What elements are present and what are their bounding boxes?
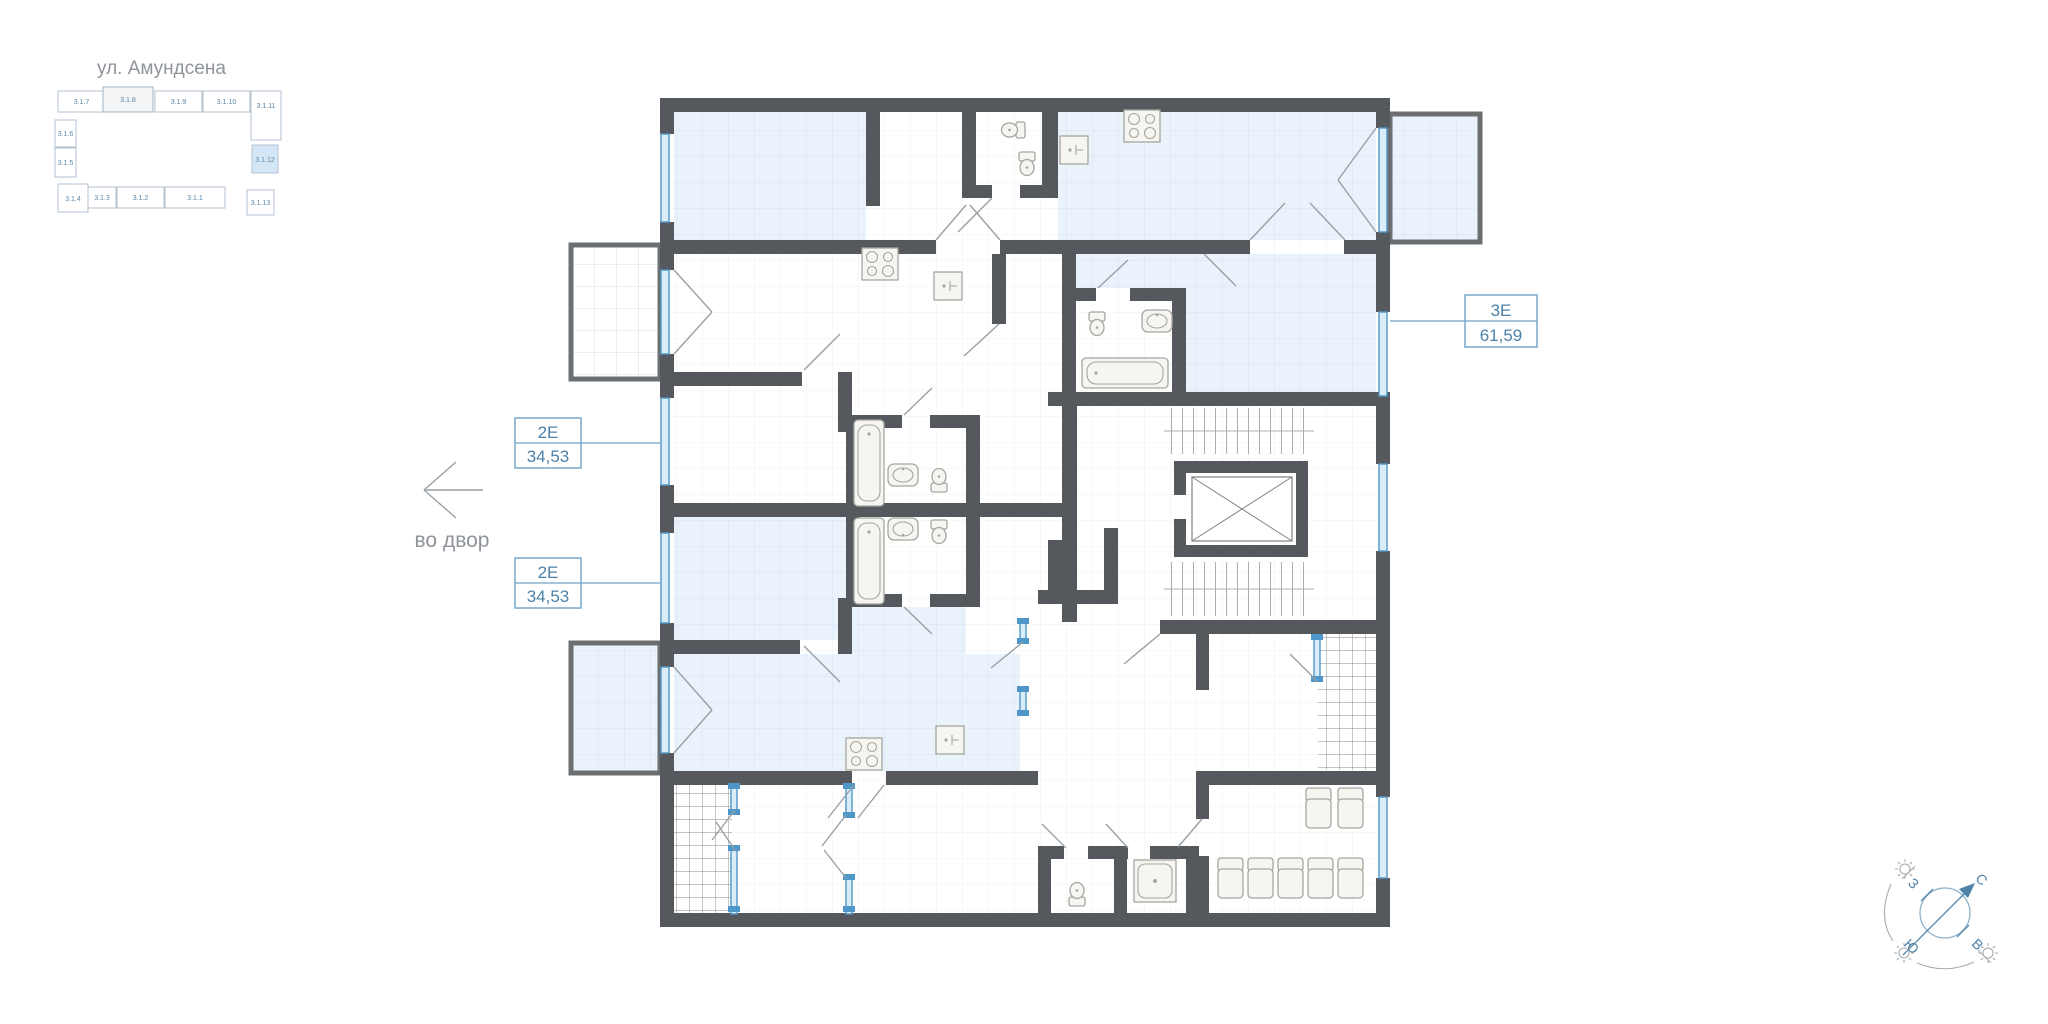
toilet-icon — [1002, 122, 1026, 138]
svg-text:3.1.13: 3.1.13 — [251, 200, 271, 207]
kitchen-sink-icon — [934, 272, 962, 300]
sun-path-arc — [1884, 884, 1893, 941]
apartment-type: 2Е — [538, 423, 559, 442]
apartment-type: 3Е — [1491, 301, 1512, 320]
courtyard-arrow: во двор — [415, 462, 490, 552]
window-left-3 — [661, 533, 669, 623]
storage-unit-icon — [1308, 858, 1333, 898]
compass-north: С — [1972, 870, 1990, 888]
balcony-bottom-left — [571, 643, 660, 773]
minimap: ул. Амундсена 3.1.7 3.1.8 3.1.9 3.1.10 3… — [55, 58, 281, 215]
svg-text:3.1.3: 3.1.3 — [94, 195, 110, 202]
window-right-stairwell — [1379, 464, 1387, 551]
apartment-type: 2Е — [538, 563, 559, 582]
bathtub-icon — [854, 420, 884, 506]
storage-unit-icon — [1218, 858, 1243, 898]
toilet-icon — [931, 520, 947, 544]
stroller-room-left — [674, 785, 732, 913]
svg-text:3.1.1: 3.1.1 — [187, 195, 203, 202]
toilet-icon — [931, 469, 947, 493]
apartment-area: 34,53 — [527, 587, 570, 606]
sink-icon — [1142, 310, 1172, 332]
window-right-storage — [1379, 797, 1387, 878]
balcony-door-right — [1379, 128, 1387, 232]
street-label: ул. Амундсена — [97, 58, 226, 79]
balcony-door-left-bottom — [661, 667, 669, 753]
window-left-2 — [661, 398, 669, 485]
window-left-1 — [661, 134, 669, 222]
svg-text:3.1.9: 3.1.9 — [171, 99, 187, 106]
minimap-unit-3.1.10[interactable]: 3.1.10 — [203, 91, 250, 112]
compass-rose: С З Ю В — [1884, 855, 2002, 969]
minimap-unit-3.1.8[interactable]: 3.1.8 — [103, 87, 153, 112]
storage-unit-icon — [1306, 788, 1331, 828]
courtyard-label: во двор — [415, 529, 490, 552]
minimap-unit-3.1.6[interactable]: 3.1.6 — [55, 120, 76, 147]
bathtub-icon — [1082, 358, 1168, 388]
sun-path-arc — [1917, 962, 1974, 969]
minimap-unit-3.1.2[interactable]: 3.1.2 — [117, 187, 164, 208]
svg-text:3.1.7: 3.1.7 — [74, 99, 90, 106]
minimap-unit-3.1.4[interactable]: 3.1.4 — [58, 184, 88, 212]
shower-icon — [1134, 860, 1176, 902]
stove-icon — [846, 738, 882, 770]
minimap-unit-3.1.5[interactable]: 3.1.5 — [55, 148, 76, 177]
compass-west: З — [1905, 875, 1922, 892]
svg-text:3.1.5: 3.1.5 — [58, 160, 74, 167]
minimap-unit-3.1.1[interactable]: 3.1.1 — [165, 187, 225, 208]
svg-text:3.1.4: 3.1.4 — [65, 196, 81, 203]
toilet-icon — [1089, 312, 1105, 336]
sun-icon — [1894, 943, 1914, 963]
window-right-1 — [1379, 312, 1387, 396]
floor-plan-page: ул. Амундсена 3.1.7 3.1.8 3.1.9 3.1.10 3… — [0, 0, 2048, 1024]
apartment-callout-2e-lower[interactable]: 2Е 34,53 — [515, 558, 660, 608]
bathtub-icon — [854, 518, 884, 604]
minimap-unit-3.1.13[interactable]: 3.1.13 — [247, 190, 274, 215]
balcony-top-right — [1390, 114, 1480, 242]
minimap-unit-3.1.9[interactable]: 3.1.9 — [155, 91, 202, 112]
apartment-area-top-left-room[interactable] — [674, 112, 866, 240]
apartment-area-2e-bedroom[interactable] — [674, 517, 846, 640]
stroller-room-right — [1318, 634, 1376, 770]
sink-icon — [888, 518, 918, 540]
apartment-area-3e-bedroom[interactable] — [1186, 288, 1376, 392]
balcony-top-left — [571, 245, 660, 379]
storage-unit-icon — [1248, 858, 1273, 898]
stove-icon — [862, 248, 898, 280]
storage-unit-icon — [1278, 858, 1303, 898]
apartment-area-3e-kitchen-living[interactable] — [1058, 112, 1376, 240]
svg-text:3.1.2: 3.1.2 — [133, 195, 149, 202]
svg-text:3.1.12: 3.1.12 — [255, 157, 275, 164]
kitchen-sink-icon — [1060, 136, 1088, 164]
apartment-callout-2e-upper[interactable]: 2Е 34,53 — [515, 418, 660, 468]
svg-text:3.1.6: 3.1.6 — [58, 131, 74, 138]
toilet-icon — [1069, 883, 1085, 907]
floor-plan-canvas: ул. Амундсена 3.1.7 3.1.8 3.1.9 3.1.10 3… — [0, 0, 2048, 1024]
apartment-area: 34,53 — [527, 447, 570, 466]
apartment-callout-3e[interactable]: 3Е 61,59 — [1390, 295, 1537, 347]
minimap-unit-3.1.11[interactable]: 3.1.11 — [251, 91, 281, 140]
sink-icon — [888, 464, 918, 486]
minimap-unit-3.1.3[interactable]: 3.1.3 — [88, 187, 116, 208]
svg-text:3.1.11: 3.1.11 — [257, 103, 276, 110]
apartment-area: 61,59 — [1480, 326, 1523, 345]
svg-text:3.1.10: 3.1.10 — [217, 99, 237, 106]
svg-text:3.1.8: 3.1.8 — [120, 97, 136, 104]
kitchen-sink-icon — [936, 726, 964, 754]
toilet-icon — [1019, 152, 1035, 176]
apartment-area-3e-hall[interactable] — [1076, 254, 1376, 288]
storage-unit-icon — [1338, 788, 1363, 828]
minimap-unit-3.1.12-highlighted[interactable]: 3.1.12 — [252, 145, 278, 173]
balcony-door-left-top — [661, 270, 669, 354]
stove-icon — [1124, 110, 1160, 142]
storage-unit-icon — [1338, 858, 1363, 898]
minimap-unit-3.1.7[interactable]: 3.1.7 — [58, 91, 105, 112]
